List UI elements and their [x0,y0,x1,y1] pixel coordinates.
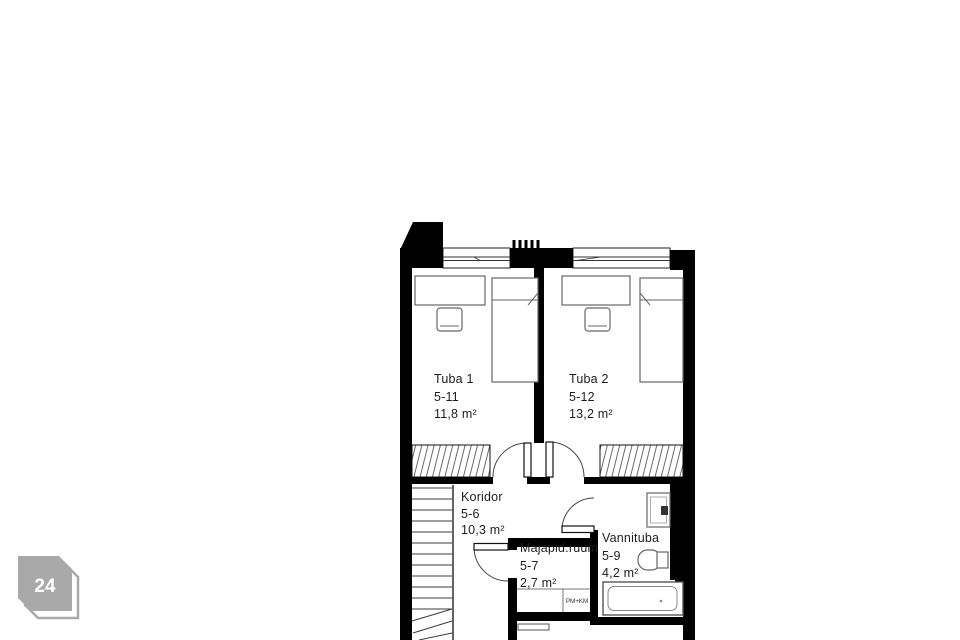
floorplan-page: 24 Tuba 1 5-11 11,8 m² Tuba 2 5-12 13,2 … [0,0,960,640]
washer-label: PM+KM [563,598,591,605]
room-area: 11,8 m² [434,406,477,424]
logo-badge-24: 24 [18,556,78,618]
window-icon-tuba2 [573,248,670,268]
room-label-vannituba: Vannituba 5-9 4,2 m² [602,530,659,583]
wardrobe-icon-tuba1 [412,445,490,477]
room-number: 5-12 [569,389,613,407]
wardrobe-icon-tuba2 [600,445,683,477]
room-number: 5-11 [434,389,477,407]
door-icon-lower-floor [518,624,549,630]
bathtub-icon [603,582,683,615]
floorplan-drawing: 24 [0,0,960,640]
bed-icon-tuba1 [492,278,538,382]
room-name: Majapid.ruum [520,540,598,558]
room-label-tuba2: Tuba 2 5-12 13,2 m² [569,371,613,424]
room-name: Tuba 2 [569,371,613,389]
room-area: 4,2 m² [602,565,659,583]
room-label-tuba1: Tuba 1 5-11 11,8 m² [434,371,477,424]
chair-icon-tuba2 [585,308,610,331]
desk-icon-tuba1 [415,276,485,305]
chair-icon-tuba1 [437,308,462,331]
stairs-icon [412,485,453,640]
door-icon-majapid [474,544,508,582]
room-label-majapid: Majapid.ruum 5-7 2,7 m² [520,540,598,593]
room-label-koridor: Koridor 5-6 10,3 m² [461,489,505,539]
room-number: 5-6 [461,506,505,523]
room-name: Tuba 1 [434,371,477,389]
room-area: 10,3 m² [461,522,505,539]
door-icon-vannituba [562,498,594,533]
sink-icon [647,493,670,527]
room-number: 5-7 [520,558,598,576]
bed-icon-tuba2 [640,278,683,382]
room-number: 5-9 [602,548,659,566]
window-icon-tuba1 [443,248,510,268]
door-icon-tuba2 [546,442,584,477]
room-name: Vannituba [602,530,659,548]
room-name: Koridor [461,489,505,506]
room-area: 13,2 m² [569,406,613,424]
door-icon-tuba1 [493,443,531,477]
room-area: 2,7 m² [520,575,598,593]
desk-icon-tuba2 [562,276,630,305]
logo-badge-label: 24 [34,576,56,597]
